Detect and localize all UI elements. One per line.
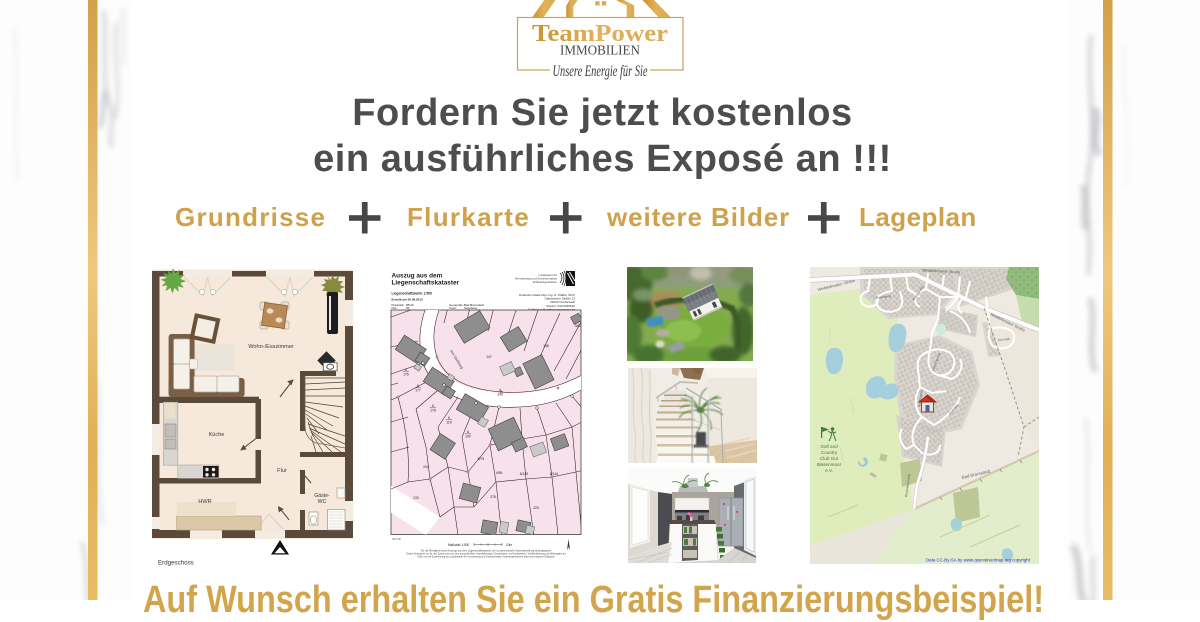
svg-text:6: 6 xyxy=(448,416,450,420)
svg-text:Data CC-By-SA by www.openstree: Data CC-By-SA by www.openstreetmap.org c… xyxy=(926,558,1031,563)
svg-text:HWR: HWR xyxy=(198,499,211,505)
svg-text:220: 220 xyxy=(533,506,539,510)
svg-text:6: 6 xyxy=(432,404,434,408)
svg-text:e.V.: e.V. xyxy=(825,468,833,473)
svg-text:Liegenschaftskataster: Liegenschaftskataster xyxy=(392,280,460,287)
svg-text:6/75: 6/75 xyxy=(478,457,485,461)
svg-text:119: 119 xyxy=(446,421,452,425)
svg-text:Bissenmoor: Bissenmoor xyxy=(817,462,842,467)
svg-text:Erstellt am 20.09.2013: Erstellt am 20.09.2013 xyxy=(392,298,424,302)
svg-text:3/82: 3/82 xyxy=(575,324,582,328)
svg-text:6: 6 xyxy=(405,368,407,372)
svg-text:Auszug aus dem: Auszug aus dem xyxy=(392,273,443,280)
svg-text:Wohn-/Esszimmer: Wohn-/Esszimmer xyxy=(248,344,294,350)
svg-text:4/95: 4/95 xyxy=(496,471,503,475)
svg-text:Golf and: Golf and xyxy=(820,444,838,449)
svg-text:Unsere Energie für Sie: Unsere Energie für Sie xyxy=(553,63,648,80)
svg-text:Club Gut: Club Gut xyxy=(820,456,839,461)
svg-text:177: 177 xyxy=(415,389,421,393)
svg-text:Küche: Küche xyxy=(209,432,225,438)
svg-text:6: 6 xyxy=(417,384,419,388)
svg-text:Flur: Flur xyxy=(277,468,287,474)
svg-text:6/149: 6/149 xyxy=(520,472,529,476)
svg-text:Country: Country xyxy=(821,450,838,455)
svg-text:244: 244 xyxy=(423,465,429,469)
svg-text:Maßstab 1:500: Maßstab 1:500 xyxy=(448,543,469,547)
svg-text:143: 143 xyxy=(497,393,503,397)
svg-text:10m: 10m xyxy=(506,543,513,547)
svg-text:147: 147 xyxy=(486,355,492,359)
svg-text:Kreis:: Kreis: xyxy=(449,306,457,310)
svg-text:Dritte nur mit Zustimmung des: Dritte nur mit Zustimmung des Landesamts… xyxy=(418,556,556,559)
svg-text:4: 4 xyxy=(499,388,501,392)
svg-text:6: 6 xyxy=(467,430,469,434)
svg-text:148: 148 xyxy=(543,344,549,348)
svg-text:233: 233 xyxy=(413,496,419,500)
svg-text:Erdgeschoss: Erdgeschoss xyxy=(158,560,194,567)
svg-text:6/144: 6/144 xyxy=(550,472,559,476)
svg-text:Schleswig-Holstein: Schleswig-Holstein xyxy=(533,280,558,284)
svg-text:278: 278 xyxy=(490,495,496,499)
svg-text:IMMOBILIEN: IMMOBILIEN xyxy=(560,43,640,58)
svg-text:WC: WC xyxy=(318,499,327,505)
svg-text:176: 176 xyxy=(403,373,409,377)
svg-text:190: 190 xyxy=(465,435,471,439)
svg-text:Segeberg: Segeberg xyxy=(464,306,477,310)
svg-text:Liegenschaftskarte 1:500: Liegenschaftskarte 1:500 xyxy=(392,292,433,296)
svg-text:178: 178 xyxy=(430,409,436,413)
